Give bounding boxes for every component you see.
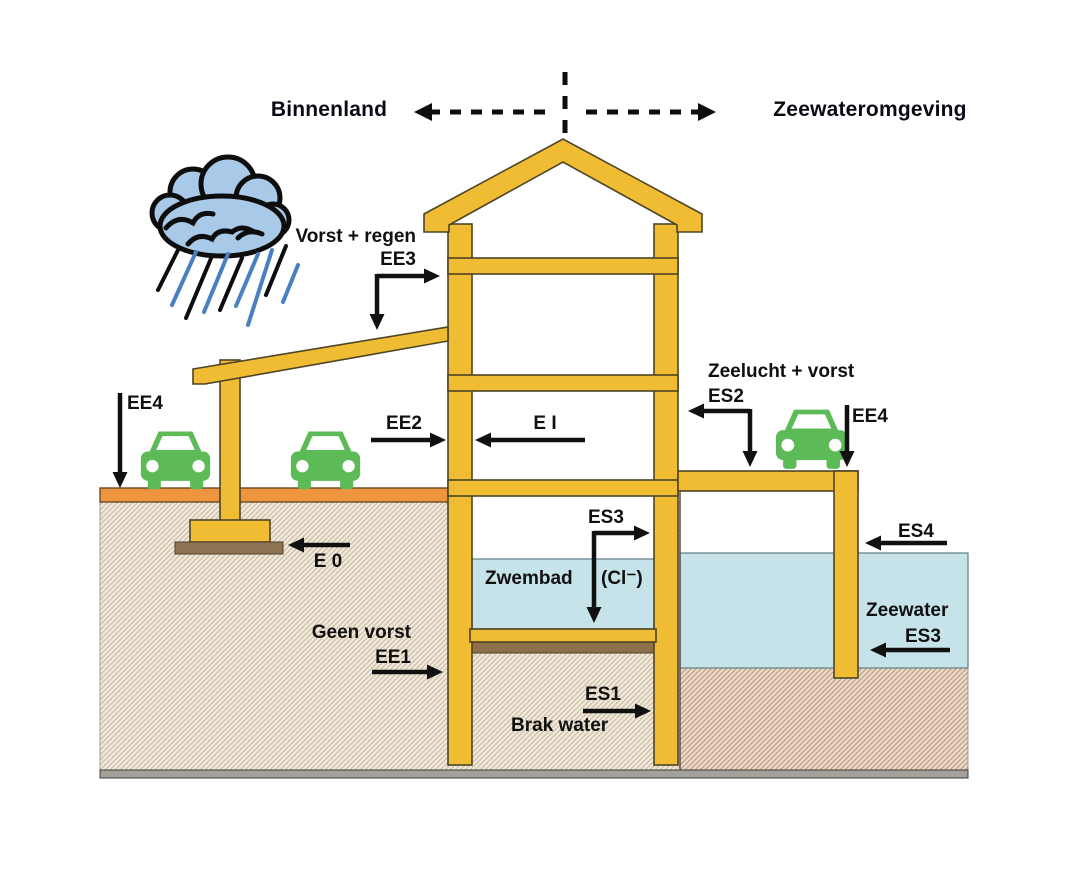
label-ee4-right: EE4 [852, 406, 888, 427]
label-ee3: EE3 [268, 249, 416, 270]
label-e0: E 0 [298, 551, 358, 572]
pool-slab [470, 629, 656, 642]
foundation-pad [175, 542, 283, 554]
sea-ground [680, 668, 968, 770]
building-cross-section [0, 0, 1090, 873]
header-right-label: Zeewateromgeving [735, 98, 1005, 122]
arrow-ee4-left [113, 393, 128, 488]
arrow-ee3 [370, 269, 441, 331]
label-zeewater: Zeewater [866, 600, 948, 621]
label-zeelucht-vorst: Zeelucht + vorst [708, 361, 854, 382]
ground-floor [448, 480, 678, 496]
attic-floor [448, 258, 678, 274]
label-ee2: EE2 [369, 413, 439, 434]
label-es4: ES4 [898, 521, 934, 542]
label-ee1: EE1 [293, 647, 411, 668]
arrow-ee2 [371, 433, 446, 448]
base-strip [100, 770, 968, 778]
car-icon [141, 432, 210, 490]
label-ee4-left: EE4 [127, 393, 163, 414]
divider-arrowhead-right [698, 103, 716, 121]
label-zwembad: Zwembad [485, 568, 573, 589]
label-es3-pool: ES3 [588, 507, 624, 528]
label-brak-water: Brak water [511, 715, 608, 736]
dashed-divider [414, 72, 716, 140]
label-geen-vorst: Geen vorst [293, 622, 411, 643]
arrow-es2 [688, 404, 758, 468]
road-surface [100, 488, 450, 502]
label-vorst-regen: Vorst + regen [268, 226, 416, 247]
car-icon [291, 432, 360, 490]
label-es3-sea: ES3 [905, 626, 941, 647]
divider-arrowhead-left [414, 103, 432, 121]
arrow-ei [475, 433, 585, 448]
sea-pile [834, 471, 858, 678]
carport-post [220, 360, 240, 522]
header-left-label: Binnenland [254, 98, 404, 122]
quay-deck [678, 471, 858, 491]
middle-floor [448, 375, 678, 391]
carport-roof [193, 327, 448, 384]
label-chloride: (Cl⁻) [601, 568, 643, 589]
diagram-stage: Binnenland Zeewateromgeving Vorst + rege… [0, 0, 1090, 873]
label-es2: ES2 [708, 386, 744, 407]
label-ei: E I [495, 413, 595, 434]
roof [424, 139, 702, 232]
footing-cap [190, 520, 270, 542]
label-es1: ES1 [585, 684, 621, 705]
car-icon [776, 410, 847, 469]
